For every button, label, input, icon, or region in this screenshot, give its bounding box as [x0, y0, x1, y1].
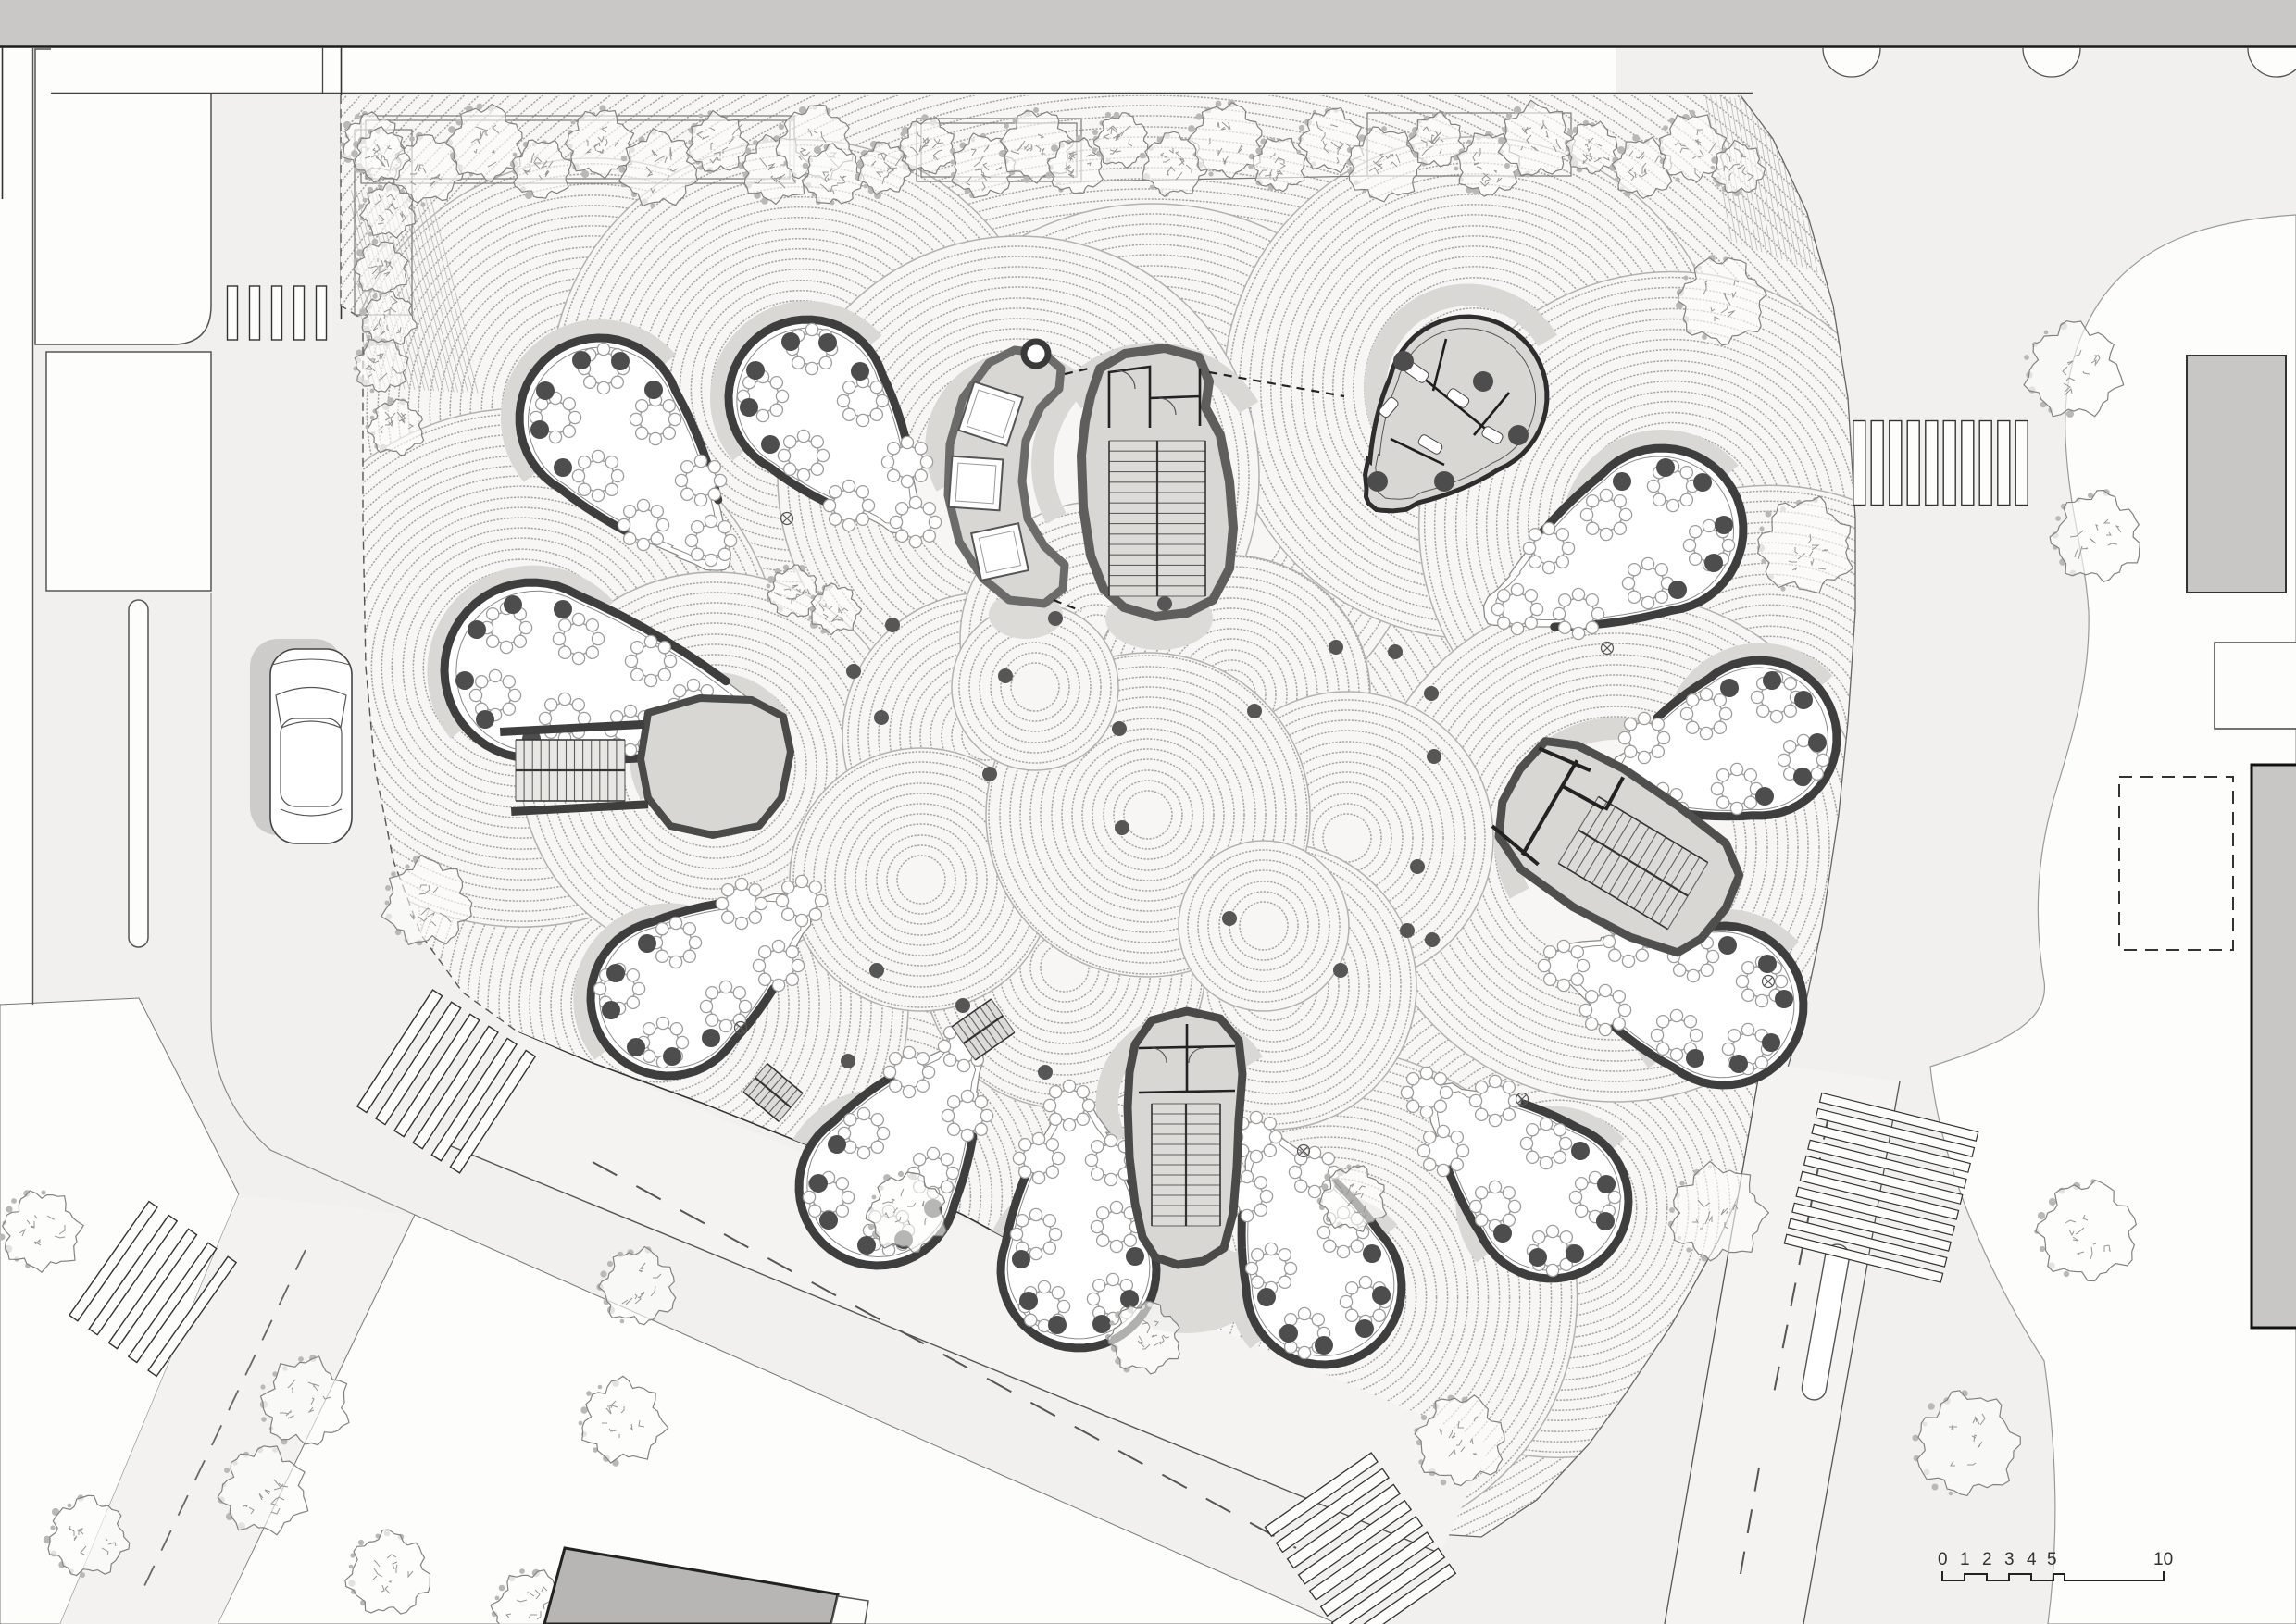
- svg-text:10: 10: [2153, 1550, 2173, 1569]
- svg-text:1: 1: [1960, 1550, 1970, 1569]
- svg-text:3: 3: [2004, 1550, 2015, 1569]
- svg-text:2: 2: [1982, 1550, 1992, 1569]
- svg-text:5: 5: [2047, 1550, 2057, 1569]
- svg-text:4: 4: [2027, 1550, 2037, 1569]
- svg-text:0: 0: [1938, 1550, 1948, 1569]
